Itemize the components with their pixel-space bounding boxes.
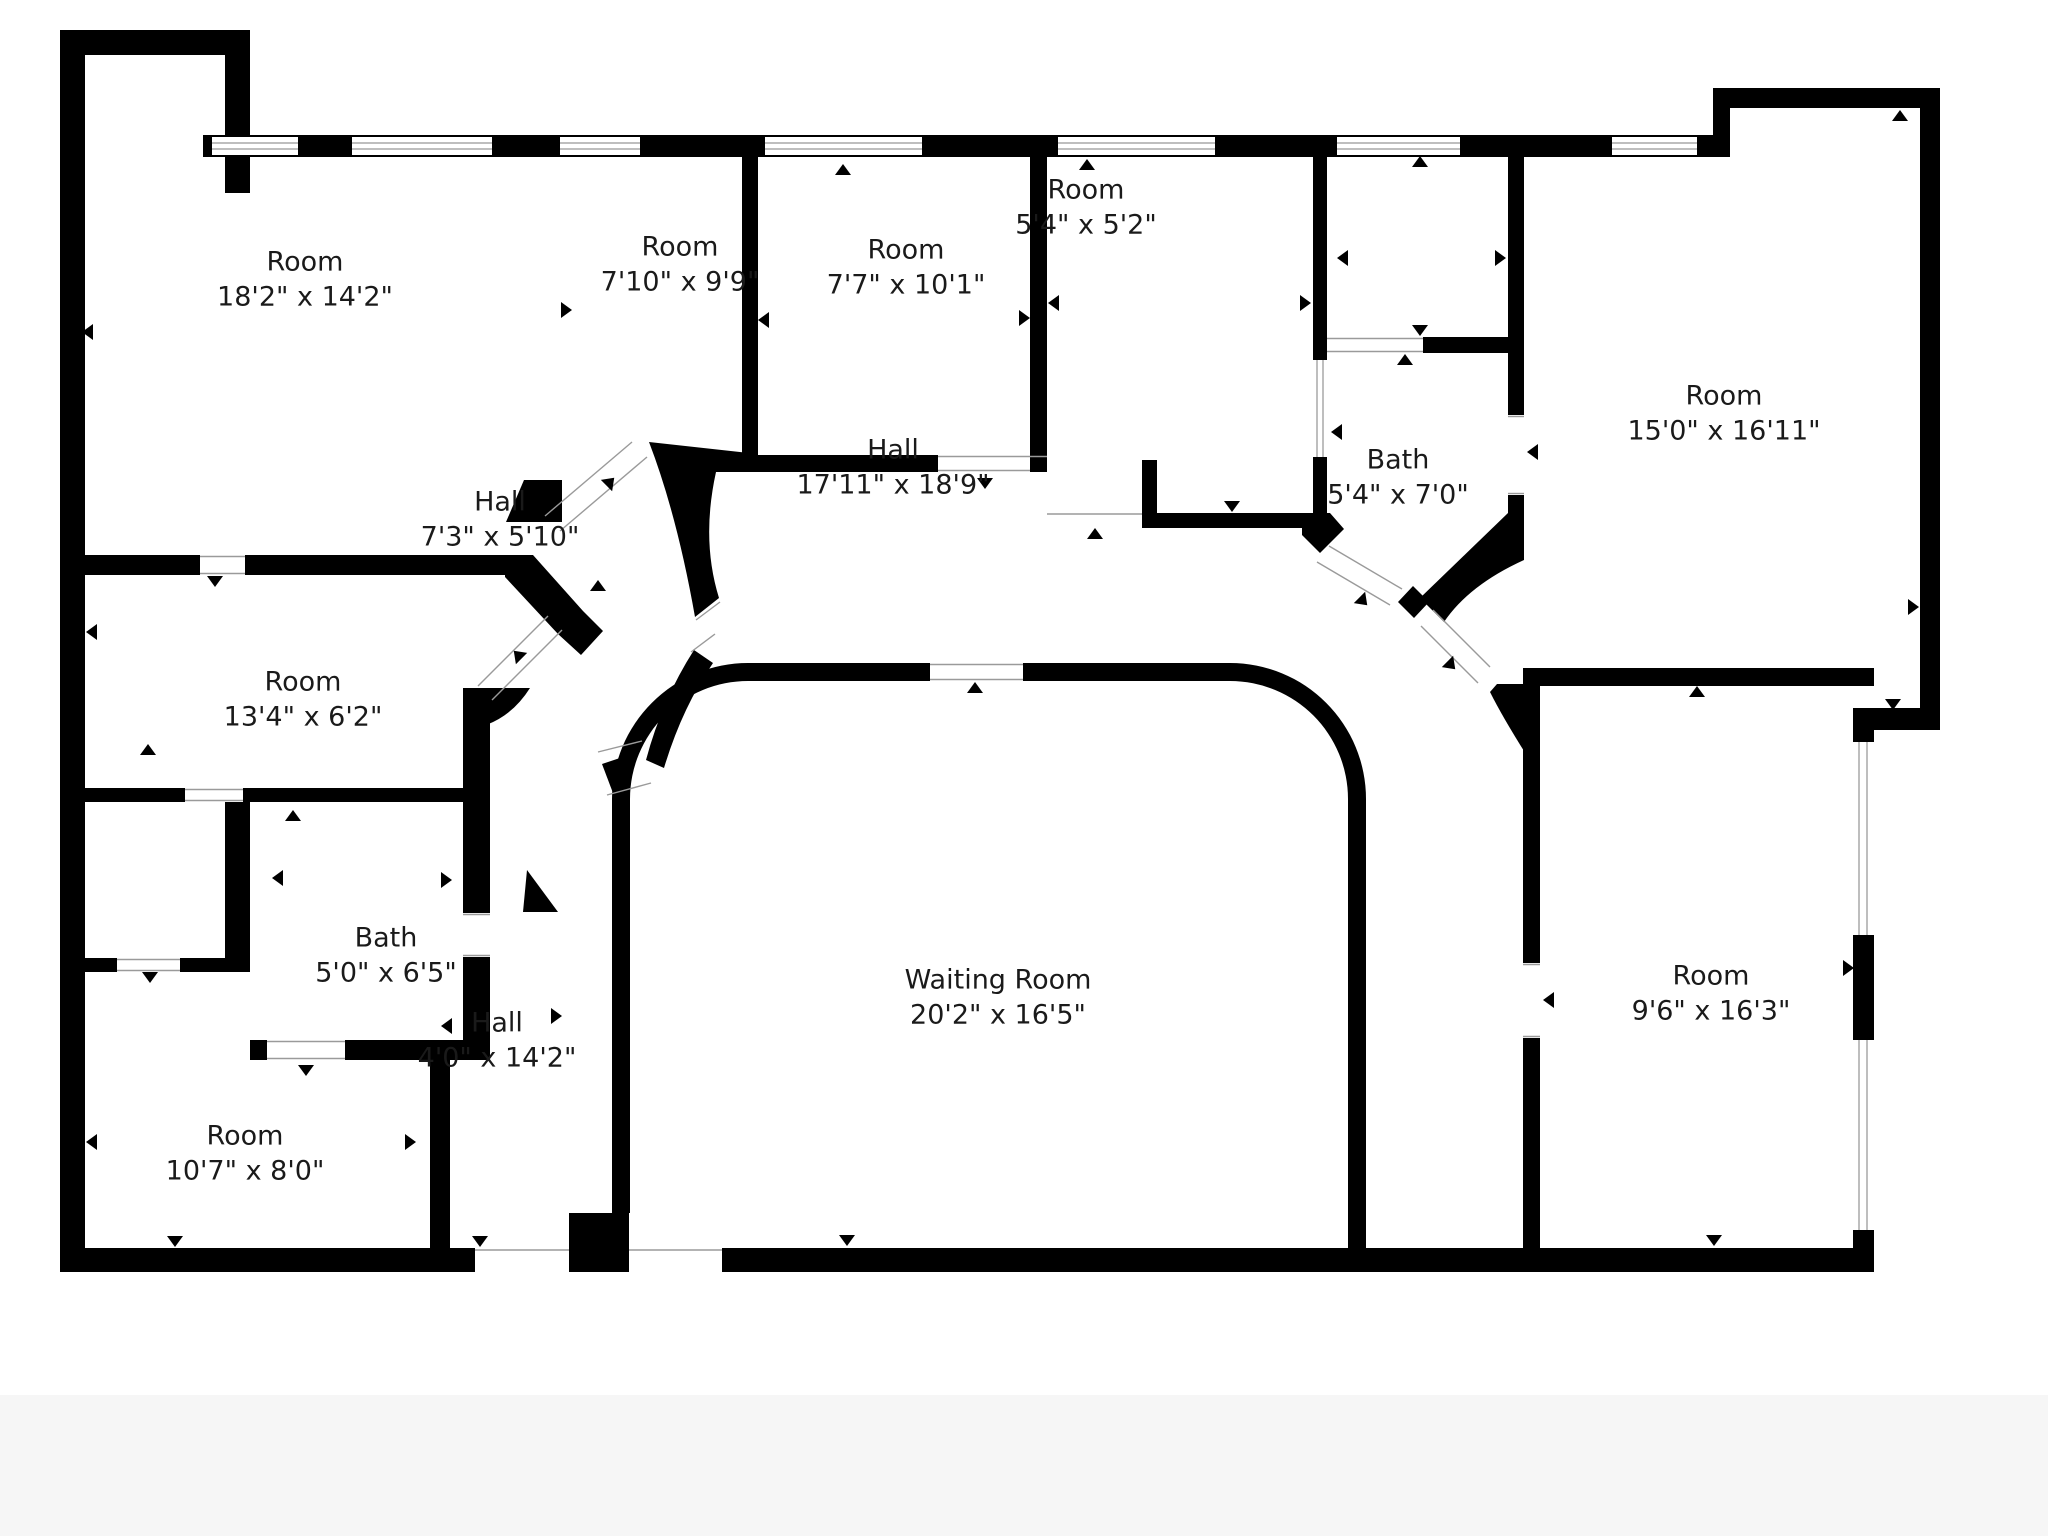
room-name: Room xyxy=(166,1119,325,1154)
room-dims: 5'0" x 6'5" xyxy=(315,956,457,991)
hall-label-4-0: Hall4'0" x 14'2" xyxy=(418,1006,577,1075)
room-label-15-0: Room15'0" x 16'11" xyxy=(1627,379,1820,448)
room-dims: 13'4" x 6'2" xyxy=(224,700,383,735)
room-dims: 5'4" x 7'0" xyxy=(1327,478,1469,513)
bath-label-5-4: Bath5'4" x 7'0" xyxy=(1327,443,1469,512)
room-dims: 17'11" x 18'9" xyxy=(796,468,989,503)
room-name: Room xyxy=(1627,379,1820,414)
room-label-7-7: Room7'7" x 10'1" xyxy=(827,233,986,302)
room-dims: 10'7" x 8'0" xyxy=(166,1154,325,1189)
room-label-5-4: Room5'4" x 5'2" xyxy=(1015,173,1157,242)
room-label-10-7: Room10'7" x 8'0" xyxy=(166,1119,325,1188)
room-name: Bath xyxy=(315,921,457,956)
hall-label-17-11: Hall17'11" x 18'9" xyxy=(796,433,989,502)
room-name: Room xyxy=(1015,173,1157,208)
room-name: Hall xyxy=(796,433,989,468)
bottom-shadow xyxy=(0,1395,2048,1536)
room-name: Room xyxy=(217,245,393,280)
waiting-room-label: Waiting Room20'2" x 16'5" xyxy=(905,963,1092,1032)
room-name: Bath xyxy=(1327,443,1469,478)
room-name: Hall xyxy=(421,485,580,520)
room-dims: 5'4" x 5'2" xyxy=(1015,208,1157,243)
room-name: Room xyxy=(827,233,986,268)
room-label-13-4: Room13'4" x 6'2" xyxy=(224,665,383,734)
room-dims: 9'6" x 16'3" xyxy=(1632,994,1791,1029)
room-label-18-2: Room18'2" x 14'2" xyxy=(217,245,393,314)
floorplan-stage: Room18'2" x 14'2" Room7'10" x 9'9" Room7… xyxy=(0,0,2048,1536)
room-label-9-6: Room9'6" x 16'3" xyxy=(1632,959,1791,1028)
bath-label-5-0: Bath5'0" x 6'5" xyxy=(315,921,457,990)
room-dims: 20'2" x 16'5" xyxy=(905,998,1092,1033)
room-label-7-10: Room7'10" x 9'9" xyxy=(601,230,760,299)
room-name: Room xyxy=(601,230,760,265)
room-name: Room xyxy=(224,665,383,700)
room-dims: 18'2" x 14'2" xyxy=(217,280,393,315)
room-dims: 7'3" x 5'10" xyxy=(421,520,580,555)
room-dims: 7'7" x 10'1" xyxy=(827,268,986,303)
room-dims: 15'0" x 16'11" xyxy=(1627,414,1820,449)
room-name: Hall xyxy=(418,1006,577,1041)
hall-label-7-3: Hall7'3" x 5'10" xyxy=(421,485,580,554)
room-dims: 7'10" x 9'9" xyxy=(601,265,760,300)
room-name: Waiting Room xyxy=(905,963,1092,998)
room-dims: 4'0" x 14'2" xyxy=(418,1041,577,1076)
room-name: Room xyxy=(1632,959,1791,994)
